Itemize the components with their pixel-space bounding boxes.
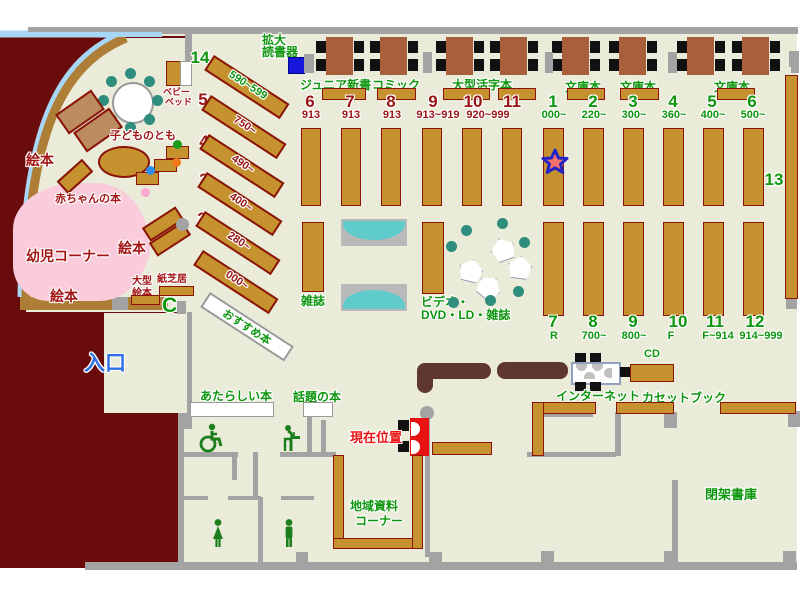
stack <box>623 128 644 206</box>
service-counter <box>497 362 568 379</box>
stack <box>743 128 764 206</box>
cushion-green <box>173 140 182 149</box>
restroom-wall-h5 <box>281 496 314 500</box>
stack <box>583 222 604 316</box>
l-shelf-v <box>532 402 544 456</box>
reading-table <box>552 37 600 75</box>
table-partition <box>668 52 677 73</box>
cushion-pink <box>141 188 150 197</box>
carrel-chair <box>446 241 457 252</box>
library-floor-map: 子どものとも 絵本 赤ちゃんの本 幼児コーナー 絵本 絵本 大型 絵本 紙芝居 … <box>0 0 800 600</box>
internet-chair <box>590 353 601 362</box>
low-no-8: 8 <box>571 312 615 332</box>
corridor-right-wall <box>187 312 192 413</box>
shelf-by-marker <box>432 442 492 455</box>
stack <box>462 128 482 206</box>
carrel-chair <box>448 297 459 308</box>
wall-block-b1 <box>541 551 554 567</box>
reading-table <box>732 37 780 75</box>
stack <box>301 128 321 206</box>
stack <box>583 128 604 206</box>
low-no-9: 9 <box>611 312 655 332</box>
outside-area-bottomleft2 <box>104 413 178 568</box>
chiiki-shelf-bottom <box>333 538 423 549</box>
chair <box>152 95 163 106</box>
restroom-wall-v2 <box>253 452 258 498</box>
magnifier-table <box>304 54 314 73</box>
table-partition <box>423 52 432 73</box>
reading-table <box>609 37 657 75</box>
ogata-ehon-shelf <box>131 295 160 305</box>
wadai-shelf <box>303 402 333 417</box>
heika-label: 閉架書庫 <box>705 484 757 503</box>
table-partition <box>791 52 799 73</box>
stack <box>663 128 684 206</box>
entrance-label: 入口 <box>84 347 126 377</box>
chair <box>106 76 117 87</box>
carrel-chair <box>513 286 524 297</box>
kamishibai-label: 紙芝居 <box>157 270 187 285</box>
stack-13 <box>785 75 798 299</box>
carrel-chair <box>485 295 496 306</box>
magazine-label: 雑誌 <box>301 292 325 309</box>
internet-chair <box>575 353 586 362</box>
wall-shelf <box>616 402 674 414</box>
internet-chair <box>620 367 630 377</box>
low-code-12: 914~999 <box>730 330 792 342</box>
internet-seat <box>604 368 612 378</box>
chiiki-block <box>429 552 442 567</box>
chair <box>144 114 155 125</box>
akachan-label: 赤ちゃんの本 <box>55 190 121 206</box>
cushion-blue <box>146 166 155 175</box>
video-stack <box>422 222 444 294</box>
current-location-label: 現在位置 <box>350 427 402 446</box>
video-label-2: DVD・LD・雑誌 <box>421 306 510 323</box>
carrel-chair <box>461 225 472 236</box>
carrel-chair <box>519 237 530 248</box>
womens-toilet-icon <box>210 518 226 548</box>
wall-block-cassette <box>664 412 677 428</box>
children-door-gap <box>112 297 128 310</box>
magazine-stack <box>302 222 324 292</box>
ur-code-6: 500~ <box>722 109 784 121</box>
low-no-11: 11 <box>693 312 737 332</box>
wall-v-cassette <box>615 412 621 456</box>
kodomo-no-tomo-label: 子どものとも <box>110 127 176 143</box>
yoji-corner-label: 幼児コーナー <box>26 246 110 266</box>
wall-bar-phone <box>177 301 186 314</box>
stack <box>381 128 401 206</box>
phone-icon: C <box>162 294 177 318</box>
chair <box>144 76 155 87</box>
magnifier-device <box>288 57 305 74</box>
stack <box>663 222 684 316</box>
stack <box>543 222 564 316</box>
ehon-label-top: 絵本 <box>26 150 54 170</box>
restroom-wall-h3 <box>184 496 208 500</box>
window-strip <box>0 32 162 37</box>
mens-toilet-icon <box>281 518 297 548</box>
reading-table <box>677 37 725 75</box>
chiiki-shelf-right <box>412 455 423 549</box>
reading-table <box>316 37 364 75</box>
restroom-wall-v3 <box>258 497 263 568</box>
wall-block-b3 <box>783 551 796 567</box>
stack <box>341 128 361 206</box>
restroom-wall-h4 <box>228 496 261 500</box>
ehon-label-mid: 絵本 <box>118 238 146 258</box>
wall-v-wadai <box>307 417 312 457</box>
ul-code-10: 920~999 <box>457 109 519 121</box>
stack <box>422 128 442 206</box>
restroom-left-wall <box>178 413 184 568</box>
wall-shelf <box>720 402 796 414</box>
cushion-orange <box>172 158 181 167</box>
cd-label: CD <box>644 348 660 360</box>
service-counter <box>417 363 433 393</box>
atarashii-shelf <box>190 402 274 417</box>
wall-block-b2 <box>664 551 677 567</box>
low-no-12: 12 <box>733 312 777 332</box>
chair <box>125 68 136 79</box>
wheelchair-icon <box>197 423 223 453</box>
ehon-label-bottom: 絵本 <box>50 286 78 306</box>
chiiki-shelf-left <box>333 455 344 549</box>
stack <box>703 128 724 206</box>
stack <box>703 222 724 316</box>
carrel-chair <box>497 218 508 229</box>
drinking-fountain-icon <box>280 423 302 453</box>
restroom-wall-v1 <box>232 452 237 480</box>
chiiki-label-2: コーナー <box>355 512 403 529</box>
internet-seat <box>584 372 595 379</box>
table-partition <box>545 52 553 73</box>
stack <box>502 128 522 206</box>
low-no-7: 7 <box>531 312 575 332</box>
stack <box>623 222 644 316</box>
restroom-block <box>296 552 308 567</box>
reading-table <box>436 37 484 75</box>
current-location-star <box>541 148 569 176</box>
reading-table <box>490 37 538 75</box>
cd-shelf <box>630 364 674 382</box>
stack <box>743 222 764 316</box>
reading-table <box>370 37 418 75</box>
